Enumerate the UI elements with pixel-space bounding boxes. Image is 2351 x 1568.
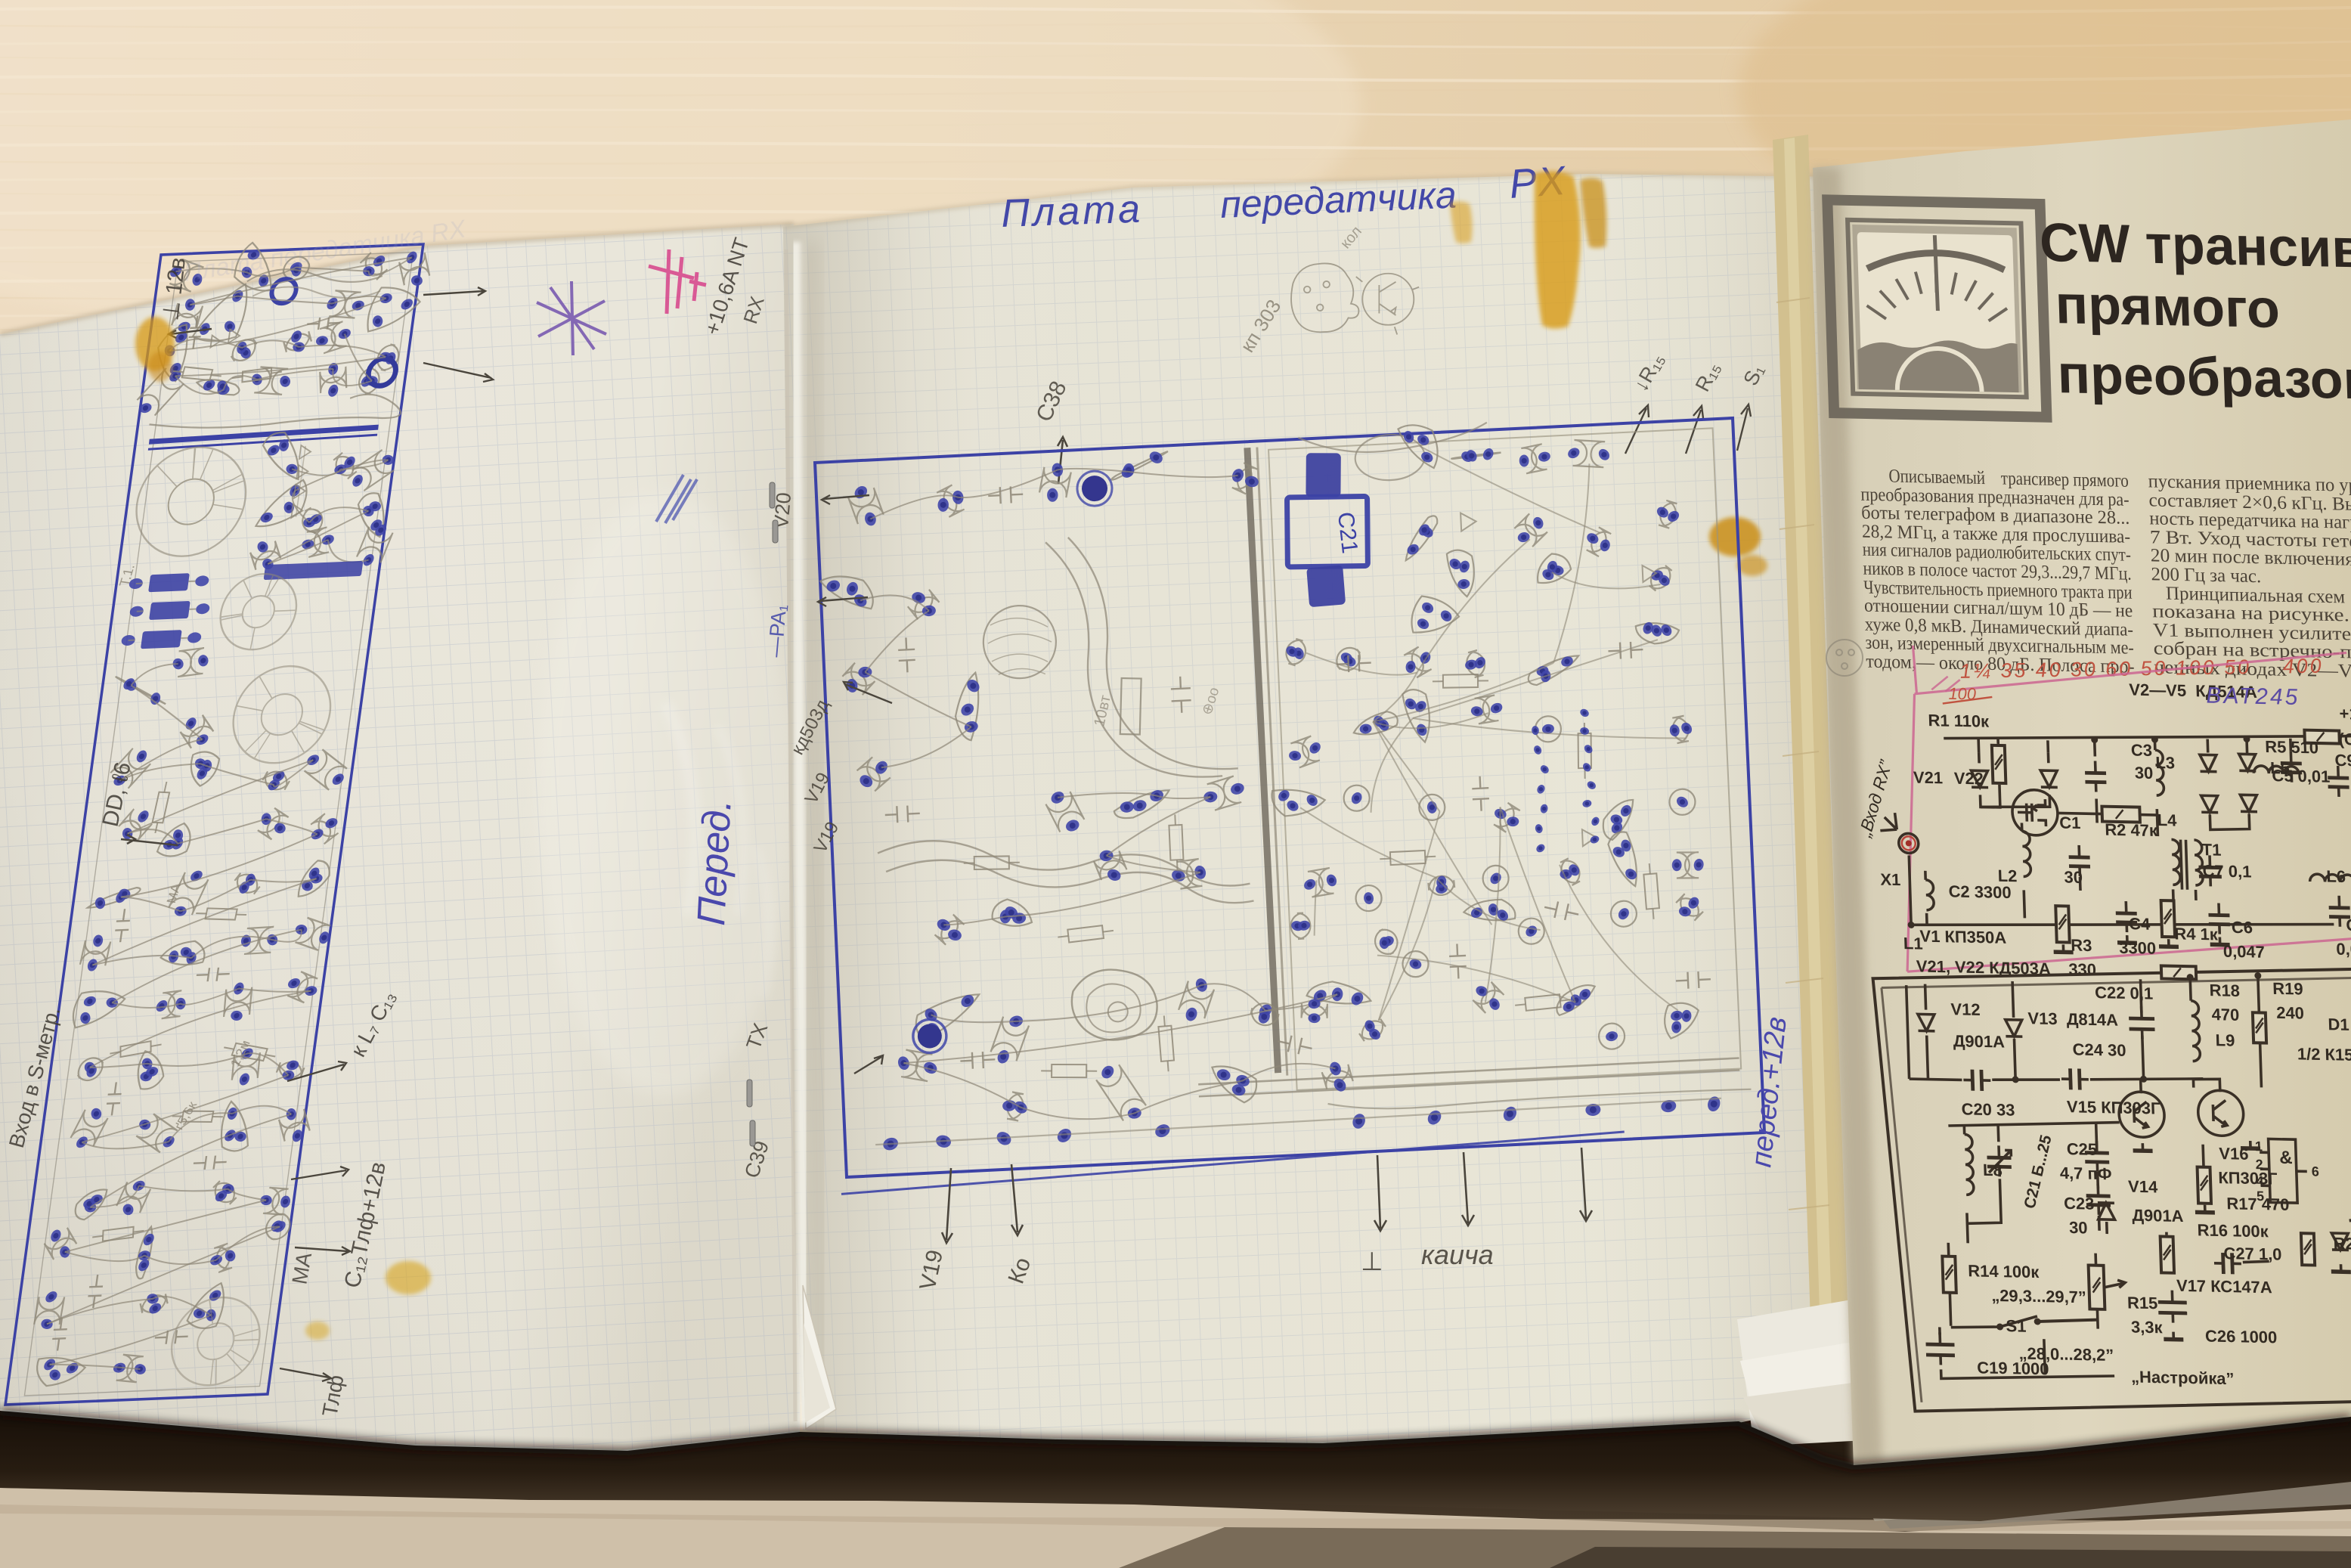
svg-text:L3: L3 <box>2155 753 2175 773</box>
svg-text:Д901А: Д901А <box>1953 1031 2005 1051</box>
svg-text:CW трансивер: CW трансивер <box>2039 212 2351 280</box>
svg-text:T1: T1 <box>2201 840 2221 860</box>
svg-text:L6: L6 <box>2326 866 2346 886</box>
svg-text:C21: C21 <box>1333 510 1362 555</box>
svg-text:C25: C25 <box>2066 1139 2097 1159</box>
svg-text:R2 47к: R2 47к <box>2105 820 2157 840</box>
svg-text:—PA₁: —PA₁ <box>764 603 791 658</box>
svg-text:R3: R3 <box>2071 936 2092 956</box>
svg-text:C27 1,0: C27 1,0 <box>2223 1244 2282 1264</box>
svg-text:Перед.: Перед. <box>689 798 740 927</box>
svg-text:C23: C23 <box>2064 1194 2095 1213</box>
svg-text:3,3к: 3,3к <box>2131 1318 2163 1337</box>
svg-text:R17 470: R17 470 <box>2226 1194 2290 1214</box>
svg-text:330: 330 <box>2068 959 2096 979</box>
svg-text:R14 100к: R14 100к <box>1968 1261 2040 1281</box>
svg-text:0,04: 0,04 <box>2336 940 2351 959</box>
svg-text:L4: L4 <box>2157 810 2177 830</box>
svg-text:C2 3300: C2 3300 <box>1948 882 2012 902</box>
svg-text:V22: V22 <box>1953 769 1984 789</box>
svg-text:Д901А: Д901А <box>2132 1206 2184 1226</box>
svg-text:C24 30: C24 30 <box>2072 1040 2126 1059</box>
svg-text:„29,3...29,7”: „29,3...29,7” <box>1991 1286 2086 1307</box>
svg-text:V1 КП350А: V1 КП350А <box>1919 927 2006 947</box>
svg-text:BAT245: BAT245 <box>2206 683 2300 711</box>
svg-text:R19: R19 <box>2272 979 2303 999</box>
svg-text:V15 КП303Г: V15 КП303Г <box>2067 1097 2161 1117</box>
svg-text:R20 1: R20 1 <box>2333 1234 2351 1253</box>
svg-text:„Настройка”: „Настройка” <box>2131 1367 2235 1388</box>
svg-text:V13 Д814А: V13 Д814А <box>2027 1009 2118 1029</box>
svg-text:R5 510: R5 510 <box>2265 737 2319 757</box>
svg-text:C6: C6 <box>2232 918 2253 937</box>
svg-text:30: 30 <box>2064 867 2083 887</box>
svg-text:0,047: 0,047 <box>2223 942 2266 962</box>
svg-text:преобразования: преобразования <box>2056 344 2351 414</box>
svg-text:L5: L5 <box>2270 758 2290 778</box>
svg-text:30: 30 <box>2134 764 2153 783</box>
svg-text:30: 30 <box>2069 1218 2088 1238</box>
svg-text:V14: V14 <box>2128 1177 2159 1197</box>
svg-text:R16 100к: R16 100к <box>2197 1220 2269 1241</box>
svg-text:C19 1000: C19 1000 <box>1977 1358 2049 1378</box>
svg-text:S1: S1 <box>2006 1316 2027 1336</box>
svg-text:470: 470 <box>2211 1005 2239 1024</box>
svg-text:+12 В: +12 В <box>2339 704 2351 724</box>
svg-text:КП303Г: КП303Г <box>2218 1168 2278 1188</box>
svg-text:(Стаб: (Стаб <box>2338 730 2351 749</box>
svg-text:C7 0,1: C7 0,1 <box>2202 861 2251 881</box>
svg-text:6: 6 <box>2311 1164 2319 1179</box>
svg-text:V16: V16 <box>2219 1144 2249 1164</box>
svg-text:&: & <box>2279 1148 2293 1168</box>
svg-text:V17 КС147А: V17 КС147А <box>2176 1276 2272 1297</box>
svg-text:X1: X1 <box>1880 870 1901 890</box>
svg-text:L9: L9 <box>2215 1030 2235 1050</box>
svg-text:C26 1000: C26 1000 <box>2205 1326 2278 1346</box>
svg-text:C8: C8 <box>2346 916 2351 935</box>
svg-text:C20 33: C20 33 <box>1961 1099 2015 1119</box>
svg-text:R1 110к: R1 110к <box>1928 711 1989 731</box>
svg-text:C9: C9 <box>2334 751 2351 770</box>
svg-text:V21: V21 <box>1913 768 1944 788</box>
svg-text:C4: C4 <box>2129 914 2151 934</box>
svg-text:240: 240 <box>2276 1003 2304 1023</box>
svg-text:3300: 3300 <box>2119 938 2157 958</box>
svg-text:L8: L8 <box>1983 1161 2003 1180</box>
svg-text:4,7 пФ: 4,7 пФ <box>2059 1164 2111 1183</box>
svg-text:C1: C1 <box>2059 813 2081 832</box>
svg-text:R4 1к: R4 1к <box>2174 924 2218 944</box>
svg-text:R15: R15 <box>2127 1293 2158 1312</box>
svg-text:1: 1 <box>2255 1139 2263 1154</box>
svg-text:каича: каича <box>1421 1239 1494 1270</box>
svg-text:C3: C3 <box>2131 740 2153 760</box>
svg-text:V12: V12 <box>1950 999 1981 1019</box>
svg-text:R18: R18 <box>2209 981 2240 1000</box>
svg-text:прямого: прямого <box>2054 274 2281 339</box>
svg-text:C22 0,1: C22 0,1 <box>2095 983 2154 1003</box>
svg-text:1/2 К155ЛАБ: 1/2 К155ЛАБ <box>2297 1044 2351 1065</box>
svg-text:D1: D1 <box>2328 1015 2349 1034</box>
svg-text:Плата: Плата <box>1000 187 1143 236</box>
svg-text:⊥: ⊥ <box>1361 1247 1383 1276</box>
